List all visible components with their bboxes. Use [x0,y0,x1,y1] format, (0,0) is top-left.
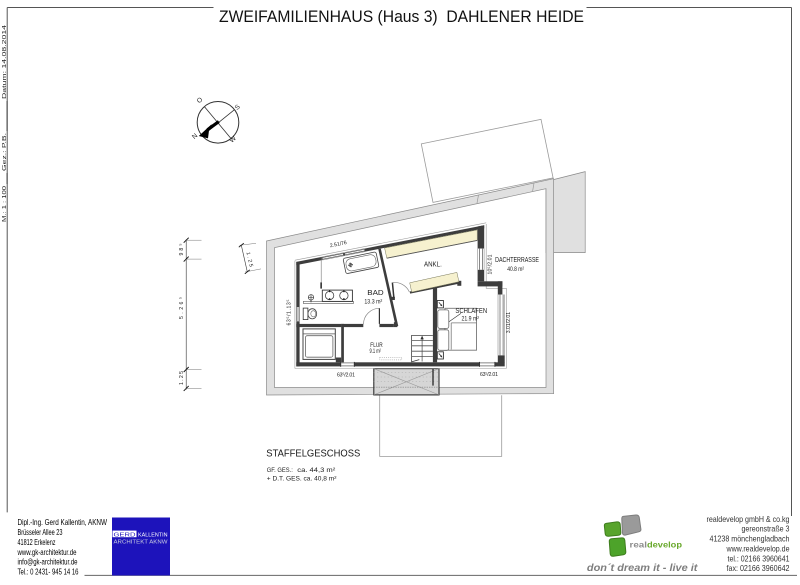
svg-text:realdevelop gmbH & co.kg: realdevelop gmbH & co.kg [707,514,790,524]
svg-text:W: W [228,135,238,145]
svg-text:ANKL.: ANKL. [424,260,442,269]
svg-text:N: N [191,132,199,141]
svg-text:5.26⁵: 5.26⁵ [179,297,185,319]
svg-text:develop: develop [647,540,682,549]
svg-text:63⁵/2.01: 63⁵/2.01 [480,372,498,378]
svg-text:10⁵/2.01: 10⁵/2.01 [488,254,494,274]
svg-text:GERD: GERD [114,533,136,539]
svg-text:BAD: BAD [367,288,383,297]
svg-text:Gez.: P.B.: Gez.: P.B. [2,133,8,171]
svg-text:don´t dream it - live it: don´t dream it - live it [587,563,698,574]
svg-text:gereonstraße 3: gereonstraße 3 [742,524,790,534]
svg-text:Tel.: 0 2431- 945 14 16: Tel.: 0 2431- 945 14 16 [18,567,79,577]
svg-text:1.25: 1.25 [179,371,185,385]
svg-text:40.8 m²: 40.8 m² [507,266,524,273]
svg-text:21.9 m²: 21.9 m² [462,316,480,323]
svg-text:ca. 44,3 m²: ca. 44,3 m² [297,467,335,474]
svg-text:real: real [630,540,648,549]
svg-text:DACHTERRASSE: DACHTERRASSE [495,257,539,264]
svg-text:www.gk-architektur.de: www.gk-architektur.de [17,547,77,557]
svg-text:www.realdevelop.de: www.realdevelop.de [726,543,790,553]
svg-text:63⁵/1.13⁵: 63⁵/1.13⁵ [287,300,293,326]
svg-text:ZWEIFAMILIENHAUS (Haus 3) DAH: ZWEIFAMILIENHAUS (Haus 3) DAHLENER HEIDE [219,8,584,26]
svg-text:fax: 02166 3960642: fax: 02166 3960642 [727,563,790,573]
svg-text:63⁵/2.01: 63⁵/2.01 [337,372,355,378]
svg-text:3.01/2.01: 3.01/2.01 [506,312,512,334]
svg-text:+ D.T. GES. ca. 40,8 m²: + D.T. GES. ca. 40,8 m² [267,475,337,482]
svg-text:ARCHITEKT AKNW: ARCHITEKT AKNW [114,540,169,546]
svg-text:Datum: 14.08.2014: Datum: 14.08.2014 [2,25,8,99]
svg-text:Brüsseler Allee 23: Brüsseler Allee 23 [18,527,63,537]
svg-text:Dipl.-Ing. Gerd Kallentin, AKN: Dipl.-Ing. Gerd Kallentin, AKNW [18,517,108,527]
svg-text:GF. GES.:: GF. GES.: [267,467,293,474]
svg-text:STAFFELGESCHOSS: STAFFELGESCHOSS [266,448,360,459]
svg-text:9.1 m²: 9.1 m² [370,348,381,355]
svg-text:2.51/76: 2.51/76 [330,240,348,249]
svg-text:41238 mönchengladbach: 41238 mönchengladbach [710,534,790,544]
svg-text:tel.: 02166 3960641: tel.: 02166 3960641 [728,553,790,563]
svg-text:info@gk-architektur.de: info@gk-architektur.de [18,557,78,567]
svg-text:41812 Erkelenz: 41812 Erkelenz [18,537,56,547]
svg-text:KALLENTIN: KALLENTIN [138,533,168,539]
svg-text:98⁵: 98⁵ [179,244,185,256]
svg-text:M.: 1 : 100: M.: 1 : 100 [2,186,8,222]
svg-text:O: O [196,96,205,105]
svg-text:13.3 m²: 13.3 m² [364,299,382,306]
